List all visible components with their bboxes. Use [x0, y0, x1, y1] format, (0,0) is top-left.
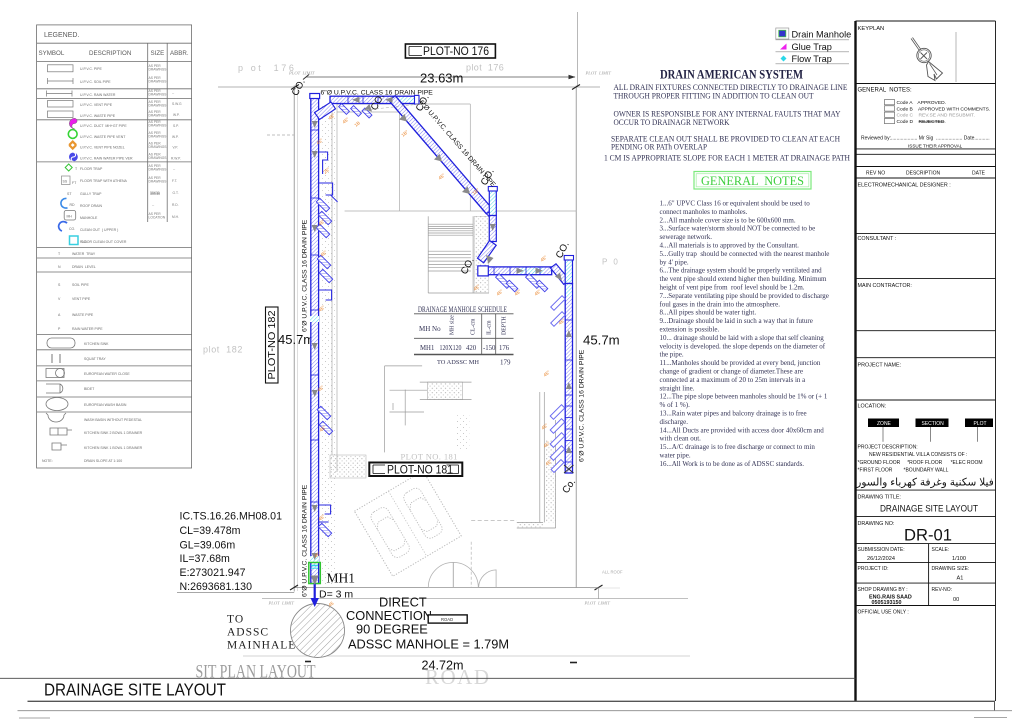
svg-text:DRAWINGS: DRAWINGS [149, 168, 168, 172]
svg-text:12...The pipe slope between ma: 12...The pipe slope between manholes sho… [660, 393, 828, 401]
svg-text:179: 179 [500, 359, 511, 367]
svg-text:RD: RD [70, 203, 76, 207]
svg-text:change of gradient or change o: change of gradient or change of diameter… [660, 368, 803, 376]
svg-text:the pipe.: the pipe. [660, 351, 684, 359]
svg-text:ISSUE THEIR APPROVAL: ISSUE THEIR APPROVAL [908, 144, 963, 149]
svg-text:DR-01: DR-01 [904, 527, 952, 545]
svg-text:BIDET: BIDET [84, 387, 95, 391]
svg-text:PLOT-NO 181: PLOT-NO 181 [387, 463, 453, 477]
svg-text:IL=37.68m: IL=37.68m [180, 553, 231, 565]
svg-text:ROAD: ROAD [441, 617, 453, 622]
svg-text:ZONE: ZONE [877, 421, 892, 427]
svg-text:DEPTH: DEPTH [502, 316, 508, 335]
svg-text:6"Ø U.P.V.C. CLASS 16 DRAIN PI: 6"Ø U.P.V.C. CLASS 16 DRAIN PIPE [579, 349, 586, 462]
svg-text:30X30: 30X30 [150, 191, 160, 195]
svg-text:CONSULTANT :: CONSULTANT : [858, 236, 897, 242]
svg-text:PLOT: PLOT [974, 421, 987, 427]
svg-text:3...Surface water/storm should: 3...Surface water/storm should NOT be co… [660, 225, 816, 233]
svg-text:6"Ø U.P.V.C. CLASS 16 DRAIN PI: 6"Ø U.P.V.C. CLASS 16 DRAIN PIPE [302, 219, 309, 332]
svg-text:DRAINAGE MANHOLE SCHEDULE: DRAINAGE MANHOLE SCHEDULE [418, 305, 507, 314]
svg-text:PROJECT DESCRIPTION:: PROJECT DESCRIPTION: [858, 445, 918, 451]
svg-text:ABBR.: ABBR. [170, 50, 189, 57]
svg-text:plot 176: plot 176 [466, 63, 504, 73]
svg-text:TO ADSSC MH: TO ADSSC MH [437, 359, 479, 366]
svg-text:SHOP DRAWING BY :: SHOP DRAWING BY : [858, 587, 908, 593]
svg-text:ALL ROOF: ALL ROOF [602, 570, 623, 575]
svg-text:DRAWINGS: DRAWINGS [149, 180, 168, 184]
svg-text:MAINHALE: MAINHALE [227, 640, 296, 652]
svg-text:SECTION: SECTION [922, 421, 945, 427]
svg-text:فيلا سكنية وغرفة كهرباء والسور: فيلا سكنية وغرفة كهرباء والسور [855, 477, 993, 489]
svg-text:DRAWINGS: DRAWINGS [149, 114, 168, 118]
svg-text:WASTE PIPE: WASTE PIPE [72, 313, 94, 317]
svg-text:U.P.V.C. WASTE PIPE VENT: U.P.V.C. WASTE PIPE VENT [80, 135, 126, 139]
svg-text:1 CM IS APPROPRIATE SLOPE FOR: 1 CM IS APPROPRIATE SLOPE FOR EACH 1 MET… [604, 153, 850, 163]
svg-text:PENDING OR PATh OVERLAP: PENDING OR PATh OVERLAP [611, 142, 707, 152]
svg-text:DRAWING SIZE:: DRAWING SIZE: [932, 566, 970, 572]
svg-text:with clean out.: with clean out. [660, 435, 702, 443]
svg-text:KITCHEN SINK 2 BOWL 1 DRAINER: KITCHEN SINK 2 BOWL 1 DRAINER [84, 431, 143, 435]
svg-text:connect manholes to manholes.: connect manholes to manholes. [660, 208, 748, 216]
svg-text:TO: TO [227, 614, 244, 626]
svg-text:PLOT LIMIT: PLOT LIMIT [268, 601, 295, 606]
svg-text:FLOOR TRAP: FLOOR TRAP [80, 167, 103, 171]
svg-text:PLOT LIMIT: PLOT LIMIT [288, 71, 315, 76]
svg-text:water pipe.: water pipe. [660, 452, 691, 460]
svg-text:MH1: MH1 [327, 571, 356, 586]
svg-text:45.7m: 45.7m [583, 333, 620, 348]
svg-text:SQUAT TRAY: SQUAT TRAY [84, 357, 106, 361]
svg-text:SIZE: SIZE [151, 50, 165, 57]
svg-text:15...A/C drainage is to free d: 15...A/C drainage is to free discharge o… [660, 443, 816, 451]
svg-text:1/100: 1/100 [952, 556, 966, 562]
svg-text:S.W.G: S.W.G [172, 102, 182, 106]
svg-text:MH No: MH No [419, 325, 441, 333]
svg-text:extension is possible.: extension is possible. [660, 326, 720, 334]
svg-text:connected at a maximum of 20 t: connected at a maximum of 20 to 25m inte… [660, 376, 807, 384]
svg-text:plot 182: plot 182 [203, 345, 243, 355]
svg-text:6"Ø U.P.V.C. CLASS 16 DRAIN PI: 6"Ø U.P.V.C. CLASS 16 DRAIN PIPE [321, 90, 434, 97]
svg-text:5...Gully trap should be conn: 5...Gully trap should be connected with … [660, 250, 830, 258]
svg-text:KITCHEN SINK: KITCHEN SINK [84, 342, 109, 346]
svg-text:REV-NO:: REV-NO: [932, 587, 953, 593]
svg-text:IL-cm: IL-cm [487, 320, 493, 335]
svg-text:WASH BASIN WITHOUT PEDESTAL: WASH BASIN WITHOUT PEDESTAL [84, 418, 142, 422]
svg-text:90 DEGREE: 90 DEGREE [356, 622, 428, 637]
svg-text:OFFICIAL USE ONLY :: OFFICIAL USE ONLY : [858, 610, 909, 616]
svg-text:EUROPEAN WASH BASIN: EUROPEAN WASH BASIN [84, 403, 127, 407]
svg-text:F.T.: F.T. [172, 179, 177, 183]
svg-text:N:2693681.130: N:2693681.130 [180, 581, 253, 593]
svg-text:PLOT LIMIT: PLOT LIMIT [584, 601, 611, 606]
svg-text:DRAWINGS: DRAWINGS [149, 80, 168, 84]
svg-text:MH: MH [67, 215, 73, 219]
svg-text:THROUGH PROPER FITTING IN ADDI: THROUGH PROPER FITTING IN ADDITION TO CL… [614, 91, 815, 101]
svg-text:CO.: CO. [69, 227, 75, 231]
svg-text:the vent pipe should extend hi: the vent pipe should extend higher then … [660, 275, 828, 283]
svg-text:U.P.V.C. SOIL PIPE: U.P.V.C. SOIL PIPE [80, 80, 111, 84]
svg-text:DRAIN SLOPE AT 1:100: DRAIN SLOPE AT 1:100 [84, 459, 122, 463]
svg-text:DRAWINGS: DRAWINGS [149, 145, 168, 149]
svg-text:LOCATION:: LOCATION: [858, 404, 887, 410]
svg-text:DRAWINGS: DRAWINGS [149, 124, 168, 128]
svg-text:6...The drainage system should: 6...The drainage system should be proper… [660, 267, 823, 275]
svg-text:PROJECT NAME:: PROJECT NAME: [858, 363, 902, 369]
svg-text:PROJECT ID:: PROJECT ID: [858, 566, 889, 572]
svg-text:by 4' pipe.: by 4' pipe. [660, 258, 689, 266]
svg-text:% of 1 %).: % of 1 %). [660, 401, 691, 409]
svg-text:OCCUR TO DRAINAGR NETWORK: OCCUR TO DRAINAGR NETWORK [614, 117, 731, 127]
svg-text:KITCHEN SINK 1 BOWL 1 DRAINER: KITCHEN SINK 1 BOWL 1 DRAINER [84, 446, 143, 450]
svg-text:KEYPLAN: KEYPLAN [858, 26, 885, 32]
svg-text:DESCRIPTION: DESCRIPTION [89, 50, 131, 57]
svg-text:DRAINAGE SITE LAYOUT: DRAINAGE SITE LAYOUT [44, 680, 226, 700]
svg-text:R.W.P.: R.W.P. [171, 157, 181, 161]
svg-text:14...All Ducts are provided wi: 14...All Ducts are provided with access … [660, 426, 825, 434]
svg-text:00: 00 [953, 597, 959, 603]
svg-text:MANHOLE: MANHOLE [80, 216, 98, 220]
svg-text:DESCRIPTION: DESCRIPTION [906, 171, 941, 177]
svg-text:MH size: MH size [450, 315, 456, 335]
svg-text:13...Rain water pipes and balc: 13...Rain water pipes and balcony draina… [660, 410, 807, 418]
svg-text:Flow Trap: Flow Trap [792, 54, 832, 64]
svg-text:Code C REV.SE AND RESUBMIT.: Code C REV.SE AND RESUBMIT. [897, 113, 975, 119]
svg-text:U.P.V.C. VENT PIPE: U.P.V.C. VENT PIPE [80, 103, 113, 107]
svg-text:U.P.V.C. WASTE PIPE: U.P.V.C. WASTE PIPE [80, 114, 116, 118]
svg-text:IC.TS.16.26.MH08.01: IC.TS.16.26.MH08.01 [180, 511, 283, 523]
svg-text:120X120: 120X120 [440, 345, 463, 352]
svg-text:U.P.V.C. DUCT MH+GT PIPE: U.P.V.C. DUCT MH+GT PIPE [80, 124, 127, 128]
svg-text:1...6" UPVC Class 16 or equiva: 1...6" UPVC Class 16 or equivalent shoul… [660, 200, 811, 208]
svg-text:W.P.: W.P. [172, 135, 179, 139]
svg-text:LEGENED.: LEGENED. [44, 32, 79, 39]
svg-text:MH1: MH1 [420, 345, 434, 352]
svg-text:16...All Work is to be done as: 16...All Work is to be done as of ADSSC … [660, 460, 805, 468]
svg-text:NOTE:: NOTE: [42, 459, 53, 463]
svg-text:--: -- [152, 203, 154, 207]
svg-text:9...Drainage should be laid in: 9...Drainage should be laid in such a wa… [660, 317, 813, 325]
svg-text:Code A APPROVED.: Code A APPROVED. [897, 100, 946, 106]
svg-text:4...All materials is to approv: 4...All materials is to approved by the … [660, 242, 800, 250]
svg-text:DRAWINGS: DRAWINGS [149, 93, 168, 97]
svg-text:DRAWING TITLE:: DRAWING TITLE: [858, 495, 901, 501]
svg-text:DATE: DATE [972, 171, 986, 177]
svg-text:176: 176 [499, 345, 510, 352]
svg-text:SYMBOL: SYMBOL [39, 50, 65, 57]
svg-text:discharge.: discharge. [660, 418, 689, 426]
svg-text:Reviewed by:..................: Reviewed by:................... Mr Sig .… [861, 136, 990, 142]
svg-text:DRAIN AMERICAN SYSTEM: DRAIN AMERICAN SYSTEM [660, 67, 803, 82]
svg-text:M.H.: M.H. [172, 215, 179, 219]
svg-text:--: -- [173, 167, 175, 171]
svg-text:E:273021.947: E:273021.947 [180, 567, 246, 579]
svg-text:p ot 176: p ot 176 [238, 63, 296, 73]
svg-text:A1: A1 [957, 576, 964, 582]
svg-text:straight line.: straight line. [660, 384, 695, 392]
svg-text:Code B APPROVED WITH COMMEN: Code B APPROVED WITH COMMENTS. [897, 106, 991, 112]
svg-text:Drain Manhole: Drain Manhole [792, 30, 852, 40]
svg-text:U.P.V.C. RAIN WATER: U.P.V.C. RAIN WATER [80, 93, 116, 97]
svg-text:GL=39.06m: GL=39.06m [180, 540, 236, 552]
svg-text:height of vent pipe from roof: height of vent pipe from roof level shou… [660, 284, 805, 292]
svg-text:V.P.: V.P. [173, 146, 179, 150]
svg-text:DRAWING NO:: DRAWING NO: [858, 521, 895, 527]
svg-text:CL-cm: CL-cm [471, 318, 477, 335]
svg-text:DRAWINGS: DRAWINGS [149, 156, 168, 160]
svg-text:*FIRST FLOOR *BOUNDARY: *FIRST FLOOR *BOUNDARY WALL [858, 468, 949, 474]
svg-text:DRAWINGS: DRAWINGS [149, 68, 168, 72]
svg-text:PLOT-NO 182: PLOT-NO 182 [267, 310, 278, 379]
svg-text:foul gases in the drain into t: foul gases in the drain into the atmosph… [660, 300, 781, 308]
svg-text:SOIL PIPE: SOIL PIPE [72, 283, 89, 287]
svg-text:ADSSC MANHOLE = 1.79M: ADSSC MANHOLE = 1.79M [348, 637, 509, 652]
svg-text:PLOT NO. 181: PLOT NO. 181 [401, 452, 458, 462]
svg-text:ROAD: ROAD [425, 665, 491, 689]
svg-text:-150: -150 [483, 345, 496, 352]
svg-text:11...Manholes should be provid: 11...Manholes should be provided at ever… [660, 359, 821, 367]
svg-text:SS: SS [63, 180, 68, 184]
svg-text:W.P.: W.P. [173, 113, 180, 117]
svg-text:PLOT-NO 176: PLOT-NO 176 [423, 44, 489, 58]
svg-text:SUBMISSION DATE:: SUBMISSION DATE: [858, 547, 905, 553]
svg-text:VENT PIPE: VENT PIPE [72, 297, 91, 301]
svg-text:ADSSC: ADSSC [227, 627, 269, 639]
svg-text:GENERAL NOTES:: GENERAL NOTES: [858, 88, 912, 94]
svg-text:Glue Trap: Glue Trap [792, 42, 832, 52]
svg-text:45.7m: 45.7m [278, 332, 314, 347]
svg-text:LOCATION: LOCATION [149, 216, 166, 220]
svg-text:DRAWINGS: DRAWINGS [149, 104, 168, 108]
svg-text:FLOOR TRAP WITH ATHENA: FLOOR TRAP WITH ATHENA [80, 179, 128, 183]
svg-text:MAIN CONTRACTOR:: MAIN CONTRACTOR: [858, 283, 912, 289]
svg-text:PLOT LIMIT: PLOT LIMIT [585, 71, 612, 76]
svg-text:FLOOR CLEAN OUT COVER: FLOOR CLEAN OUT COVER [80, 240, 127, 244]
svg-text:26/12/2024: 26/12/2024 [867, 556, 895, 562]
svg-text:EUROPEAN WATER CLOSE: EUROPEAN WATER CLOSE [84, 372, 130, 376]
svg-text:WATER TRAY: WATER TRAY [72, 252, 96, 256]
svg-text:P 0: P 0 [602, 258, 620, 267]
svg-text:U.P.V.C. RAIN WATER PIPE VER: U.P.V.C. RAIN WATER PIPE VER [80, 157, 133, 161]
svg-text:G.T.: G.T. [173, 191, 179, 195]
svg-text:23.63m: 23.63m [420, 71, 463, 86]
svg-text:*GROUND FLOOR *ROOF FLOOR: *GROUND FLOOR *ROOF FLOOR *ELEC ROOM [858, 460, 983, 466]
svg-text:DRAINAGE SITE LAYOUT: DRAINAGE SITE LAYOUT [880, 504, 979, 514]
svg-text:D= 3 m: D= 3 m [319, 589, 353, 601]
svg-text:U.P.V.C. VENT PIPE NOZEL: U.P.V.C. VENT PIPE NOZEL [80, 146, 125, 150]
svg-text:7...Separate ventilating pipe: 7...Separate ventilating pipe should be … [660, 292, 829, 300]
svg-text:420: 420 [466, 345, 477, 352]
svg-text:CLEAN OUT ( UPPER ): CLEAN OUT ( UPPER ) [80, 228, 118, 232]
svg-text:DRAIN LEVEL: DRAIN LEVEL [72, 265, 96, 269]
svg-text:0505193150: 0505193150 [872, 600, 902, 606]
svg-text:NEW RESIDENTIAL VILLA CONSISTS: NEW RESIDENTIAL VILLA CONSISTS OF : [869, 452, 967, 458]
svg-text:ROOF DRAIN: ROOF DRAIN [80, 204, 102, 208]
svg-text:2...All manhole cover size is: 2...All manhole cover size is to be 600x… [660, 216, 796, 224]
svg-text:S.P.: S.P. [173, 124, 179, 128]
svg-text:R.D.: R.D. [172, 203, 179, 207]
svg-text:10... drainage should be laid: 10... drainage should be laid with a slo… [660, 334, 825, 342]
svg-text:8...All pipes should be water: 8...All pipes should be water tight. [660, 309, 757, 317]
svg-text:--: -- [172, 91, 174, 95]
svg-text:Code D REJECTED.: Code D REJECTED. [897, 119, 946, 125]
svg-text:GULLY TRAP: GULLY TRAP [80, 192, 102, 196]
svg-text:velocity is developed. the slo: velocity is developed. the slope depends… [660, 342, 826, 350]
svg-text:sewerage network.: sewerage network. [660, 233, 713, 241]
svg-text:CL=39.478m: CL=39.478m [180, 525, 241, 537]
svg-text:SCALE:: SCALE: [932, 547, 950, 553]
svg-text:ELECTROMECHANICAL DESIGNER :: ELECTROMECHANICAL DESIGNER : [858, 183, 951, 189]
svg-text:U.P.V.C. PIPE: U.P.V.C. PIPE [80, 67, 102, 71]
svg-text:DRAWINGS: DRAWINGS [149, 135, 168, 139]
svg-text:RAIN WATER PIPE: RAIN WATER PIPE [72, 327, 103, 331]
svg-text:6"Ø U.P.V.C. CLASS 16 DRAIN PI: 6"Ø U.P.V.C. CLASS 16 DRAIN PIPE [302, 484, 309, 597]
svg-text:GENERAL NOTES: GENERAL NOTES [701, 173, 804, 188]
svg-text:REV NO: REV NO [866, 171, 885, 177]
